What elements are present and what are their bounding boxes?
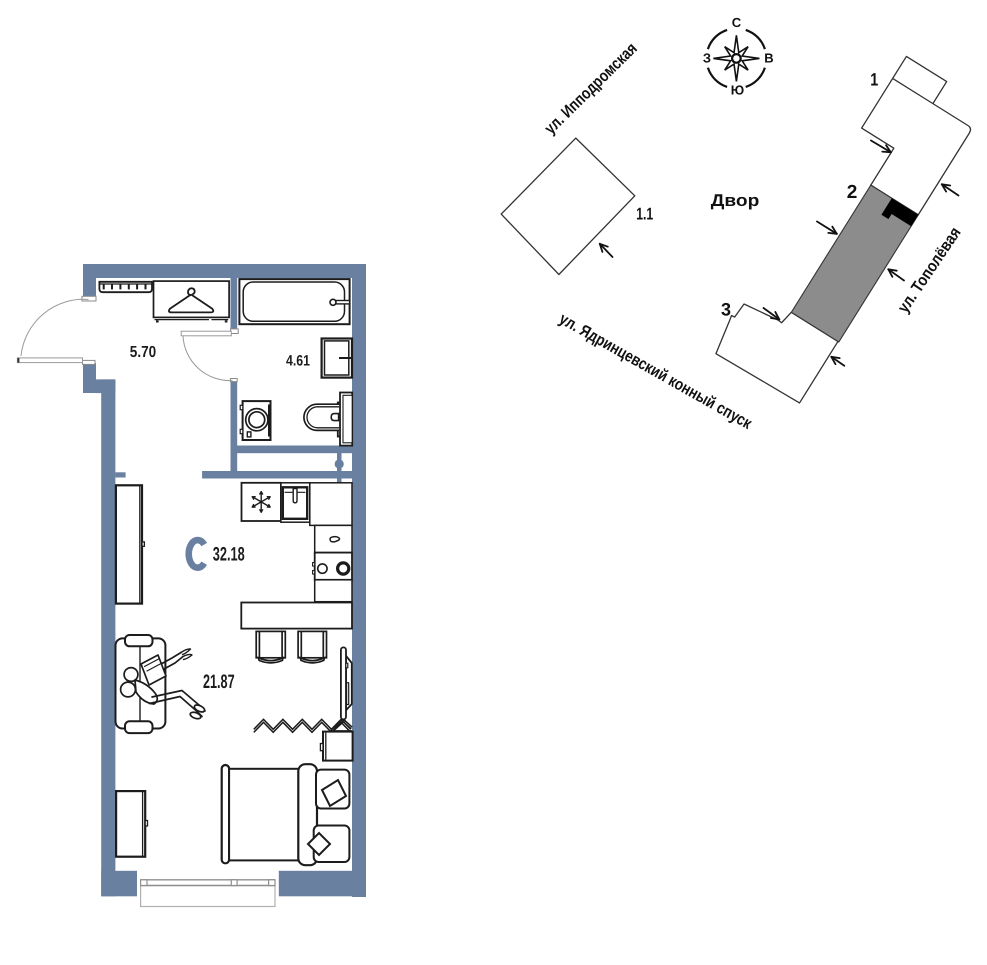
svg-text:4.61: 4.61 [286,352,310,369]
svg-text:5.70: 5.70 [130,344,156,361]
svg-text:2: 2 [847,182,858,203]
svg-text:В: В [764,51,773,66]
svg-text:З: З [703,51,711,66]
svg-text:3: 3 [721,300,731,320]
svg-text:21.87: 21.87 [203,671,235,693]
svg-text:Ю: Ю [731,82,744,97]
svg-text:С: С [732,15,742,30]
svg-text:32.18: 32.18 [213,543,245,565]
svg-text:1: 1 [870,70,878,90]
svg-text:1.1: 1.1 [636,205,653,224]
svg-text:Двор: Двор [711,191,760,210]
